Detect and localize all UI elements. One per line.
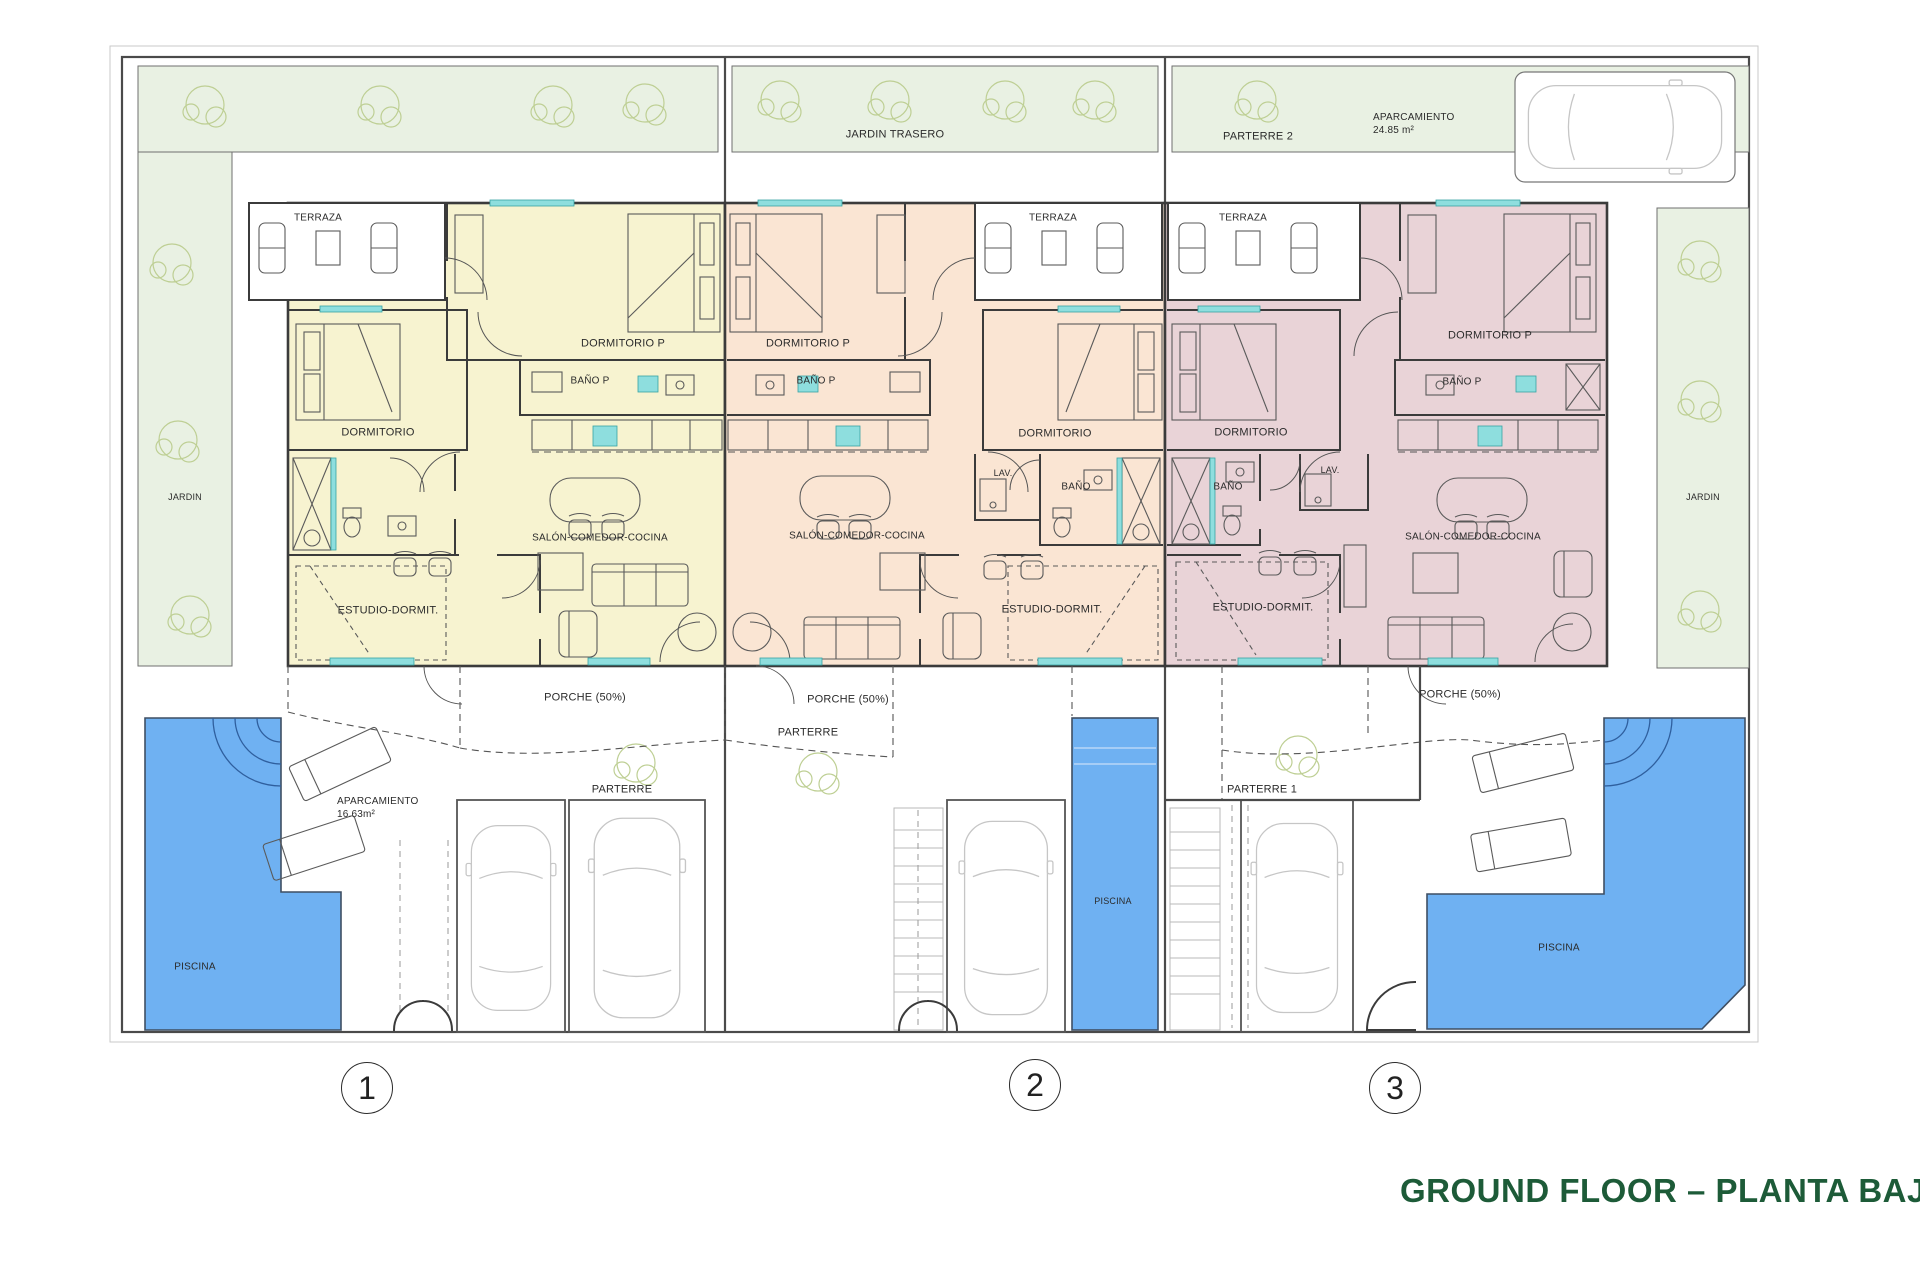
unit-2-marker: 2 — [1009, 1059, 1061, 1111]
unit-1-stove — [593, 426, 617, 446]
label-piscina-1: PISCINA — [174, 961, 215, 973]
label-lav-2: LAV. — [994, 468, 1013, 478]
label-estudio-3: ESTUDIO-DORMIT. — [1213, 602, 1314, 615]
label-piscina-2: PISCINA — [1094, 896, 1131, 906]
label-bano-2: BAÑO — [1061, 481, 1090, 493]
label-bano-p-3: BAÑO P — [1443, 376, 1482, 388]
label-bano-3: BAÑO — [1213, 481, 1242, 493]
page-title: GROUND FLOOR – PLANTA BAJA — [1400, 1172, 1920, 1210]
unit-1-marker: 1 — [341, 1062, 393, 1114]
unit-1-shower-glass — [331, 458, 336, 550]
label-jardin-right: JARDIN — [1686, 492, 1720, 502]
driveway-unit-2 — [894, 800, 1065, 1032]
label-estudio-1: ESTUDIO-DORMIT. — [338, 605, 439, 618]
parking-u1-area: 16.63m² — [337, 809, 419, 822]
label-salon-2: SALÓN-COMEDOR-COCINA — [789, 530, 925, 542]
floor-plan-linework — [0, 0, 1920, 1280]
unit-3-banop-window — [1516, 376, 1536, 392]
label-lav-3: LAV. — [1321, 465, 1340, 475]
label-bano-p-1: BAÑO P — [571, 375, 610, 387]
unit-1-banop-window — [638, 376, 658, 392]
label-parking-top: APARCAMIENTO 24.85 m² — [1373, 112, 1455, 137]
label-parterre-u1: PARTERRE — [592, 784, 652, 797]
unit-2-stove — [836, 426, 860, 446]
label-terraza-2: TERRAZA — [1029, 212, 1077, 224]
parking-pad — [1515, 72, 1735, 182]
unit-1-terraza — [249, 203, 445, 300]
pool-piscina-1 — [145, 718, 341, 1030]
label-jardin-trasero: JARDIN TRASERO — [846, 129, 945, 142]
label-terraza-1: TERRAZA — [294, 212, 342, 224]
porch-dashed-limits — [288, 666, 1604, 800]
unit-2-shower-glass — [1117, 458, 1122, 544]
label-parking-u1: APARCAMIENTO 16.63m² — [337, 796, 419, 821]
floor-plan-page: JARDIN JARDIN JARDIN TRASERO PARTERRE 2 … — [0, 0, 1920, 1280]
label-dormitorio-1: DORMITORIO — [341, 427, 414, 440]
label-salon-1: SALÓN-COMEDOR-COCINA — [532, 532, 668, 544]
pool-piscina-3 — [1427, 718, 1745, 1029]
label-porche-1: PORCHE (50%) — [544, 692, 626, 705]
unit-3-marker: 3 — [1369, 1062, 1421, 1114]
label-bano-p-2: BAÑO P — [797, 375, 836, 387]
garden-jardin-trasero — [732, 66, 1158, 152]
driveway-unit-1 — [394, 800, 705, 1032]
label-terraza-3: TERRAZA — [1219, 212, 1267, 224]
label-parterre-u2: PARTERRE — [778, 727, 838, 740]
unit-3-shower-glass — [1210, 458, 1215, 544]
parking-top-area: 24.85 m² — [1373, 125, 1455, 138]
garden-band-1 — [138, 66, 718, 152]
label-dormitorio-p-1: DORMITORIO P — [581, 338, 665, 351]
label-estudio-2: ESTUDIO-DORMIT. — [1002, 604, 1103, 617]
parking-top-name: APARCAMIENTO — [1373, 112, 1455, 125]
label-dormitorio-p-2: DORMITORIO P — [766, 338, 850, 351]
label-salon-3: SALÓN-COMEDOR-COCINA — [1405, 531, 1541, 543]
label-porche-2: PORCHE (50%) — [807, 694, 889, 707]
label-dormitorio-3: DORMITORIO — [1214, 427, 1287, 440]
label-piscina-3: PISCINA — [1538, 942, 1579, 954]
label-parterre-2: PARTERRE 2 — [1223, 131, 1293, 144]
label-parterre-1: PARTERRE 1 — [1227, 784, 1297, 797]
label-dormitorio-p-3: DORMITORIO P — [1448, 330, 1532, 343]
parking-u1-name: APARCAMIENTO — [337, 796, 419, 809]
label-dormitorio-2: DORMITORIO — [1018, 428, 1091, 441]
label-jardin-left: JARDIN — [168, 492, 202, 502]
label-porche-3: PORCHE (50%) — [1419, 689, 1501, 702]
garden-left-strip — [138, 152, 232, 666]
driveway-unit-3 — [1165, 666, 1420, 1032]
unit-3-stove — [1478, 426, 1502, 446]
